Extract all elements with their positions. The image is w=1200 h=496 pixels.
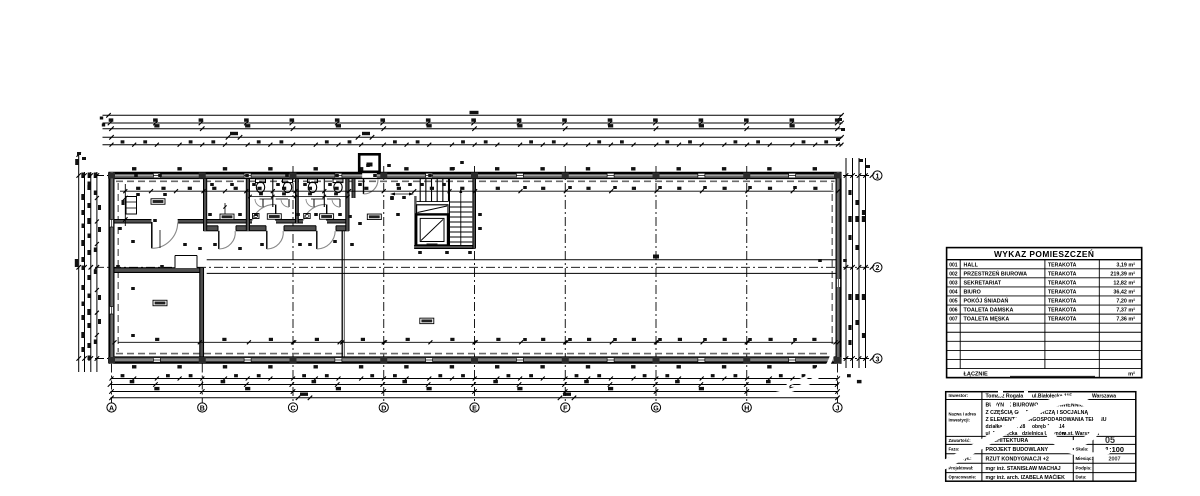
svg-text:005: 005 bbox=[949, 299, 958, 305]
svg-text:Inwestor:: Inwestor: bbox=[949, 393, 969, 398]
svg-text:E: E bbox=[472, 405, 477, 412]
svg-text:05: 05 bbox=[1105, 435, 1115, 445]
svg-text:001: 001 bbox=[949, 262, 958, 268]
svg-text:ŁĄCZNIE: ŁĄCZNIE bbox=[964, 371, 989, 377]
svg-text:TERAKOTA: TERAKOTA bbox=[1048, 299, 1077, 305]
svg-text:3,19 m²: 3,19 m² bbox=[1116, 262, 1135, 268]
svg-text:PROJEKT BUDOWLANY: PROJEKT BUDOWLANY bbox=[986, 447, 1049, 453]
svg-text:POKÓJ ŚNIADAŃ: POKÓJ ŚNIADAŃ bbox=[964, 297, 1009, 305]
svg-text:Zawartość:: Zawartość: bbox=[949, 438, 971, 443]
svg-text:002: 002 bbox=[949, 271, 958, 277]
svg-text:TERAKOTA: TERAKOTA bbox=[1048, 271, 1077, 277]
svg-text:Warszawa: Warszawa bbox=[1092, 393, 1116, 399]
svg-text:003: 003 bbox=[949, 280, 958, 286]
svg-text:Opracowanie:: Opracowanie: bbox=[949, 475, 977, 480]
svg-text:004: 004 bbox=[949, 290, 958, 296]
svg-text:inwestycji:: inwestycji: bbox=[949, 418, 970, 423]
svg-text:Data:: Data: bbox=[1076, 475, 1088, 480]
svg-text:SEKRETARIAT: SEKRETARIAT bbox=[964, 280, 1002, 286]
svg-text:007: 007 bbox=[949, 317, 958, 323]
svg-text:PRZESTRZEŃ BIUROWA: PRZESTRZEŃ BIUROWA bbox=[964, 269, 1028, 277]
svg-text:mgr inż. STANISŁAW MACHAJ: mgr inż. STANISŁAW MACHAJ bbox=[986, 466, 1061, 472]
svg-text:RZUT KONDYGNACJI +2: RZUT KONDYGNACJI +2 bbox=[986, 456, 1049, 462]
svg-text:12,82 m²: 12,82 m² bbox=[1113, 280, 1135, 286]
svg-text:2: 2 bbox=[875, 265, 879, 272]
svg-text:219,39 m²: 219,39 m² bbox=[1110, 271, 1135, 277]
svg-text:TERAKOTA: TERAKOTA bbox=[1048, 280, 1077, 286]
svg-text:TERAKOTA: TERAKOTA bbox=[1048, 308, 1077, 314]
svg-text:HALL: HALL bbox=[964, 262, 979, 268]
svg-text:TERAKOTA: TERAKOTA bbox=[1048, 290, 1077, 296]
svg-text:1: 1 bbox=[875, 173, 879, 180]
svg-text:TOALETA MĘSKA: TOALETA MĘSKA bbox=[964, 317, 1010, 323]
svg-text:dzielnica Ursynów: dzielnica Ursynów bbox=[1022, 431, 1066, 437]
svg-text:C: C bbox=[290, 405, 295, 412]
svg-text:Z ELEMENTAMI ZAGOSPODAROWANIA: Z ELEMENTAMI ZAGOSPODAROWANIA TERENU bbox=[986, 417, 1107, 423]
svg-text:D: D bbox=[381, 405, 386, 412]
svg-text:H: H bbox=[744, 405, 749, 412]
svg-text:TOALETA DAMSKA: TOALETA DAMSKA bbox=[964, 308, 1014, 314]
svg-text:mgr inż. arch. IZABELA MAĆIEK: mgr inż. arch. IZABELA MAĆIEK bbox=[986, 473, 1066, 481]
svg-text:Podpis:: Podpis: bbox=[1076, 465, 1093, 470]
svg-text:36,42 m²: 36,42 m² bbox=[1113, 290, 1135, 296]
svg-text:Tomasz Rogala: Tomasz Rogala bbox=[986, 393, 1024, 399]
svg-text:B: B bbox=[200, 405, 205, 412]
svg-text:3: 3 bbox=[875, 356, 879, 363]
svg-text:006: 006 bbox=[949, 308, 958, 314]
svg-text:Nazwa i adres: Nazwa i adres bbox=[949, 412, 977, 417]
svg-text:7,36 m²: 7,36 m² bbox=[1116, 317, 1135, 323]
svg-text:WYKAZ POMIESZCZEŃ: WYKAZ POMIESZCZEŃ bbox=[994, 248, 1094, 259]
svg-text:J: J bbox=[836, 405, 840, 412]
svg-text:Projektował:: Projektował: bbox=[949, 465, 974, 470]
svg-text:TERAKOTA: TERAKOTA bbox=[1048, 317, 1077, 323]
svg-text:m²: m² bbox=[1128, 370, 1135, 377]
svg-text:7,37 m²: 7,37 m² bbox=[1116, 308, 1135, 314]
svg-text:G: G bbox=[653, 405, 659, 412]
svg-text:7,20 m²: 7,20 m² bbox=[1116, 299, 1135, 305]
svg-text:BIURO: BIURO bbox=[964, 290, 981, 296]
svg-text:TERAKOTA: TERAKOTA bbox=[1048, 262, 1077, 268]
svg-text:Faza:: Faza: bbox=[949, 447, 960, 452]
svg-text:F: F bbox=[563, 405, 568, 412]
svg-text:2007: 2007 bbox=[1109, 457, 1121, 463]
svg-text:A: A bbox=[109, 405, 114, 412]
